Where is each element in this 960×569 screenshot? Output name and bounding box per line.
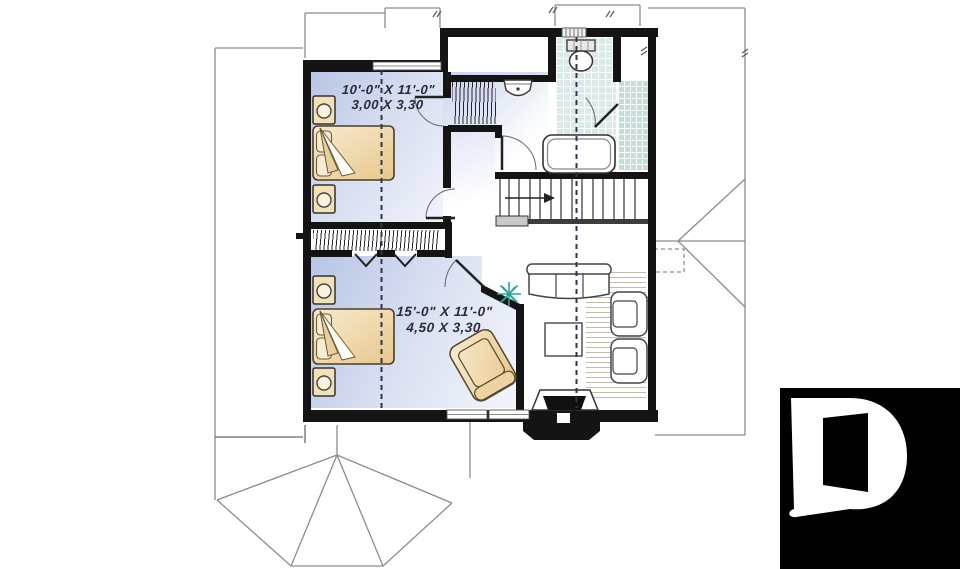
room2-dimension-label: 15'-0" X 11'-0" 4,50 X 3,30	[368, 304, 520, 336]
bathtub	[543, 135, 615, 173]
chimney-dashed-outline	[654, 249, 684, 272]
armchair	[611, 339, 647, 383]
room2-dim-metric: 4,50 X 3,30	[368, 320, 519, 336]
armchair	[611, 292, 647, 336]
toilet-icon	[570, 51, 593, 71]
roof-outlines	[215, 5, 745, 566]
room1-dimension-label: 10'-0" X 11'-0" 3,00 X 3,30	[317, 82, 459, 112]
closet-bifold-left	[355, 254, 377, 266]
floor-plan-page: 10'-0" X 11'-0" 3,00 X 3,30 15'-0" X 11'…	[0, 0, 960, 569]
drummond-d-logo	[780, 388, 960, 569]
lamp-icon	[317, 376, 331, 390]
armchair-beige	[447, 326, 520, 404]
room1-dim-metric: 3,00 X 3,30	[317, 97, 458, 112]
chimney-flue	[556, 412, 571, 424]
sofa	[529, 274, 609, 299]
closet-bifold-right	[394, 254, 416, 266]
lamp-icon	[317, 284, 331, 298]
bathroom-fixtures	[504, 40, 615, 173]
room1-dim-imperial: 10'-0" X 11'-0"	[318, 82, 459, 97]
brand-logo	[780, 388, 960, 569]
lamp-icon	[317, 193, 331, 207]
room2-dim-imperial: 15'-0" X 11'-0"	[369, 304, 520, 320]
tv-screen	[543, 396, 586, 410]
bedroom2-door	[456, 260, 484, 287]
plant-icon	[497, 282, 521, 306]
stair-newel-post	[496, 216, 528, 226]
staircase	[496, 179, 648, 226]
linen-door	[595, 104, 618, 127]
